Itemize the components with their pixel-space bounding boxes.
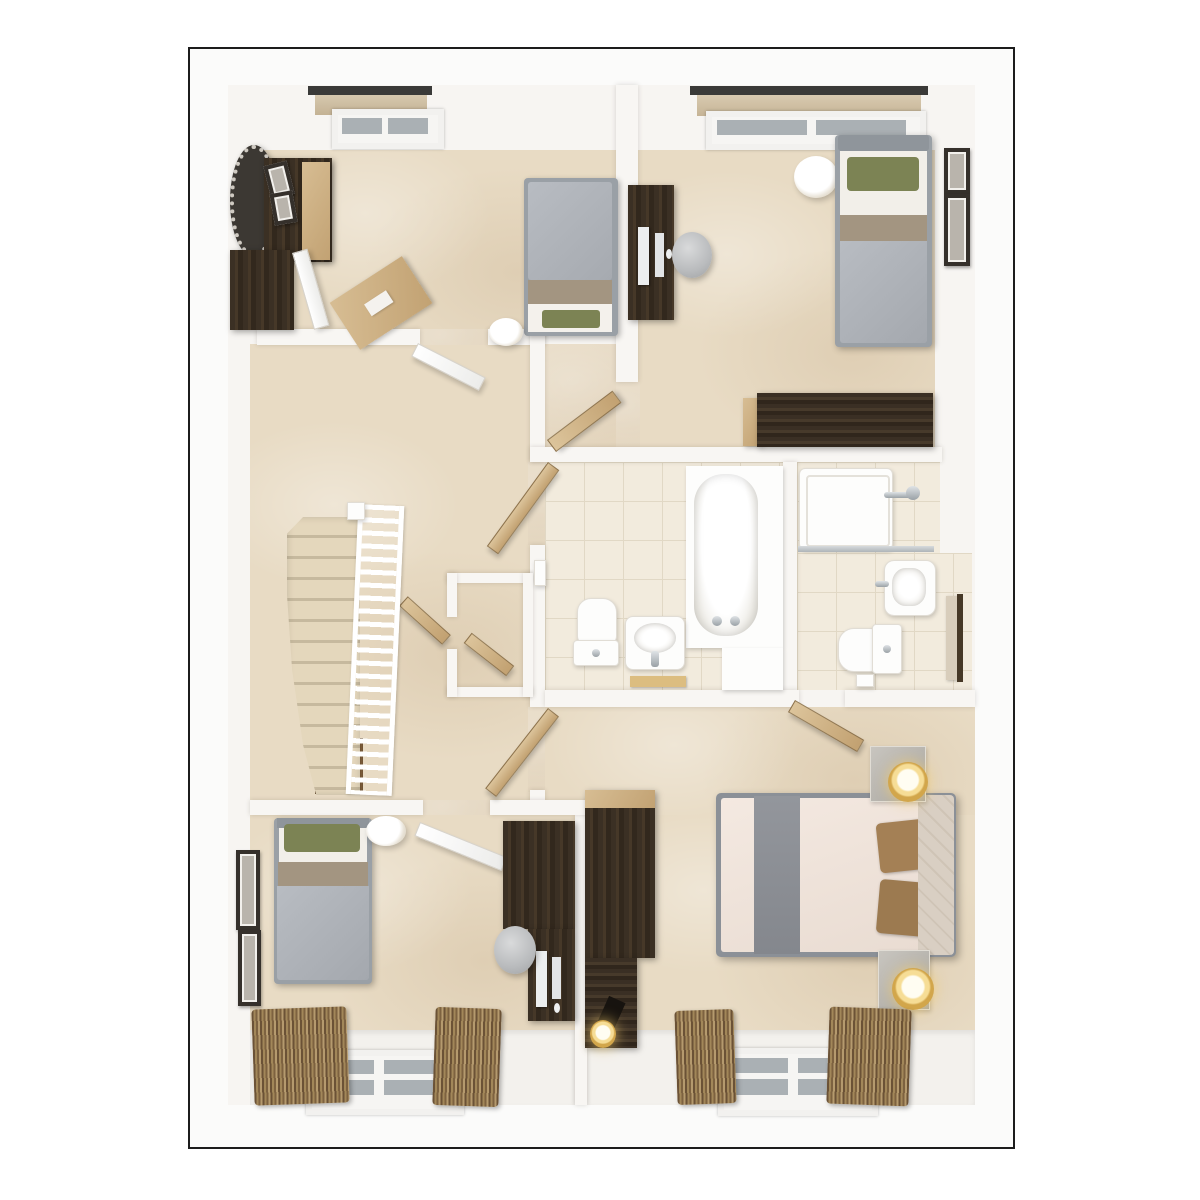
toilet-cistern: [573, 640, 619, 666]
wall-frame: [236, 850, 260, 930]
cupboard-wall: [447, 573, 533, 583]
pillow-green: [284, 824, 360, 852]
shower-base: [806, 475, 890, 547]
single-bed-green-pillow: [274, 818, 372, 984]
wall-frame: [238, 930, 261, 1006]
window-pane: [388, 118, 428, 134]
toilet-roll: [856, 674, 874, 687]
tufted-headboard: [918, 795, 954, 955]
master-wardrobe: [585, 790, 655, 958]
wall: [250, 800, 423, 815]
ensuite-basin: [884, 560, 936, 616]
floor-lamp: [366, 816, 406, 846]
pillow-green: [542, 310, 600, 328]
wall: [490, 800, 590, 815]
ensuite-toilet-cistern: [872, 624, 902, 674]
gold-lamp: [892, 968, 934, 1010]
wardrobe-top: [585, 790, 655, 808]
desk-chair: [672, 232, 712, 278]
window-lintel: [690, 86, 928, 95]
curtain: [826, 1007, 911, 1107]
window-pane: [728, 1058, 788, 1073]
floorplan-render: [0, 0, 1200, 1200]
bed-runner: [754, 796, 800, 954]
window-pane: [728, 1079, 788, 1095]
window-lintel: [308, 86, 432, 95]
bathtub: [694, 474, 758, 636]
mouse: [554, 1003, 560, 1013]
shower-tray: [799, 468, 893, 550]
toilet-bowl: [577, 598, 617, 646]
basin-bowl: [634, 623, 676, 653]
curtain: [251, 1006, 349, 1105]
shower-head: [906, 486, 920, 500]
curtain: [432, 1007, 501, 1107]
doorway-bedroom-top-left: [420, 329, 488, 345]
bath-mat: [630, 676, 686, 687]
towel: [946, 596, 957, 680]
flush-button: [883, 645, 891, 653]
keyboard: [655, 233, 664, 277]
long-dresser: [757, 393, 933, 447]
bath-step: [722, 648, 783, 690]
window-pane: [342, 118, 382, 134]
shower-glass-screen: [798, 546, 934, 552]
single-bed: [524, 178, 618, 336]
roof-window: [332, 109, 444, 149]
desk-paper: [364, 290, 393, 316]
basin-bowl: [892, 568, 926, 606]
wall-frame: [944, 148, 970, 194]
dresser: [230, 250, 294, 330]
basin-tap: [651, 651, 659, 667]
wardrobe: [503, 821, 575, 929]
bed-duvet: [840, 241, 927, 343]
flush-button: [592, 649, 600, 657]
desk-with-computer: [628, 185, 674, 320]
keyboard: [552, 957, 561, 999]
bed-duvet: [277, 886, 369, 980]
wall-frame: [944, 194, 970, 266]
wall: [530, 329, 545, 462]
window-pane: [717, 120, 807, 135]
basin: [625, 616, 685, 670]
wall: [530, 447, 942, 462]
cupboard-wall: [447, 573, 457, 617]
double-bed: [716, 793, 956, 957]
side-lamp: [794, 156, 838, 198]
bed-blanket: [528, 280, 612, 304]
monitor: [536, 951, 547, 1007]
toilet-roll-holder: [534, 560, 546, 586]
wardrobe-door: [302, 162, 330, 260]
curtain: [674, 1009, 736, 1105]
wall: [257, 329, 420, 345]
doorway-bedroom-top-right: [616, 382, 640, 448]
cupboard-wall: [447, 649, 457, 697]
cupboard-wall: [523, 573, 533, 697]
newel-post: [347, 502, 365, 520]
cupboard-wall: [447, 687, 533, 697]
wall: [545, 690, 799, 707]
bath-tap: [730, 616, 740, 626]
desk-chair: [494, 926, 536, 974]
headboard: [838, 135, 929, 151]
towel-rail: [957, 594, 963, 682]
monitor: [638, 227, 649, 285]
bed-duvet: [528, 182, 612, 280]
desk-gold-lamp: [590, 1020, 616, 1048]
window-pane: [816, 120, 906, 135]
bath-tap: [712, 616, 722, 626]
basin-tap: [875, 581, 889, 587]
wall: [783, 462, 797, 690]
bed-blanket: [278, 862, 368, 886]
single-bed-green-pillow: [835, 135, 932, 347]
bed-blanket: [840, 215, 927, 241]
floor-lamp: [489, 318, 523, 346]
wall: [845, 690, 975, 707]
pillow-green: [847, 157, 919, 191]
gold-lamp: [888, 762, 928, 802]
